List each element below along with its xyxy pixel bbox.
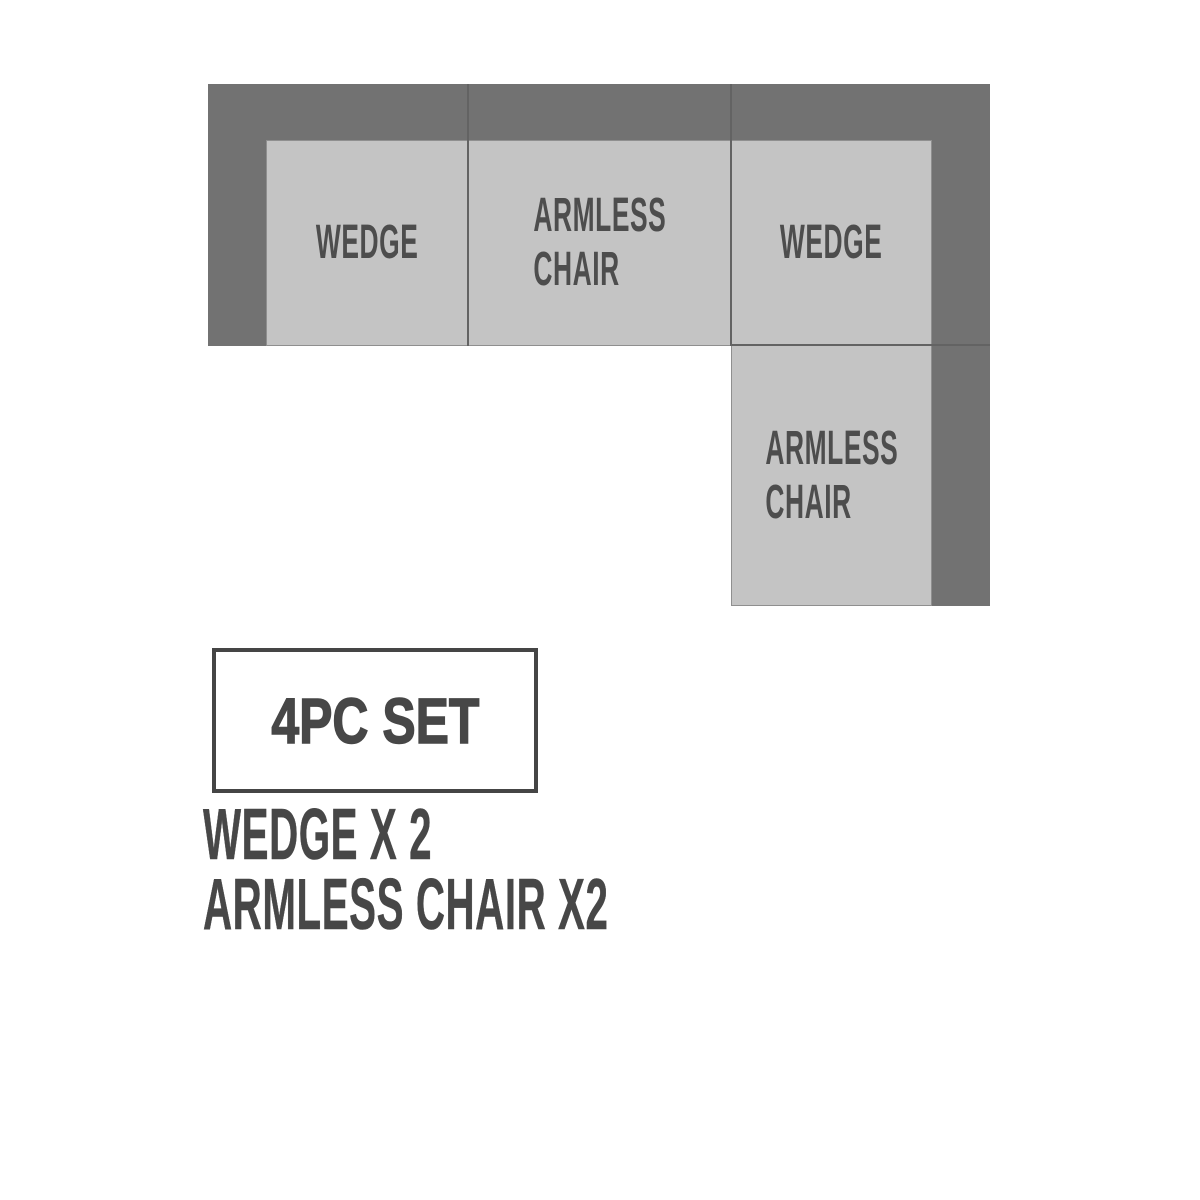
piece-wedge-right-label: WEDGE (780, 216, 882, 270)
piece-label-line: CHAIR (533, 243, 666, 297)
piece-armless-chair-side: ARMLESS CHAIR (731, 345, 932, 606)
sofa-back-top (208, 84, 990, 141)
piece-label-line: WEDGE (316, 216, 418, 270)
piece-wedge-right: WEDGE (731, 140, 932, 346)
piece-label-line: WEDGE (780, 216, 882, 270)
legend-line-wedge: WEDGE X 2 (203, 800, 608, 870)
page: WEDGE ARMLESS CHAIR WEDGE ARMLESS CHAIR … (0, 0, 1200, 1200)
set-badge: 4PC SET (212, 648, 538, 793)
sofa-arm-left (208, 84, 266, 346)
piece-wedge-left: WEDGE (266, 140, 468, 346)
legend-line-armless: ARMLESS CHAIR X2 (203, 870, 608, 940)
piece-label-line: CHAIR (765, 476, 898, 530)
seam-divider-horizontal (731, 344, 990, 346)
seam-divider-left (467, 84, 469, 346)
seam-divider-right (730, 84, 732, 346)
piece-label-line: ARMLESS (533, 189, 666, 243)
piece-armless-chair-top-label: ARMLESS CHAIR (533, 189, 666, 297)
sectional-diagram: WEDGE ARMLESS CHAIR WEDGE ARMLESS CHAIR (208, 84, 990, 606)
piece-armless-chair-top: ARMLESS CHAIR (468, 140, 731, 346)
set-badge-label: 4PC SET (271, 684, 479, 758)
piece-label-line: ARMLESS (765, 422, 898, 476)
piece-armless-chair-side-label: ARMLESS CHAIR (765, 422, 898, 530)
piece-wedge-left-label: WEDGE (316, 216, 418, 270)
legend: WEDGE X 2 ARMLESS CHAIR X2 (203, 800, 927, 940)
